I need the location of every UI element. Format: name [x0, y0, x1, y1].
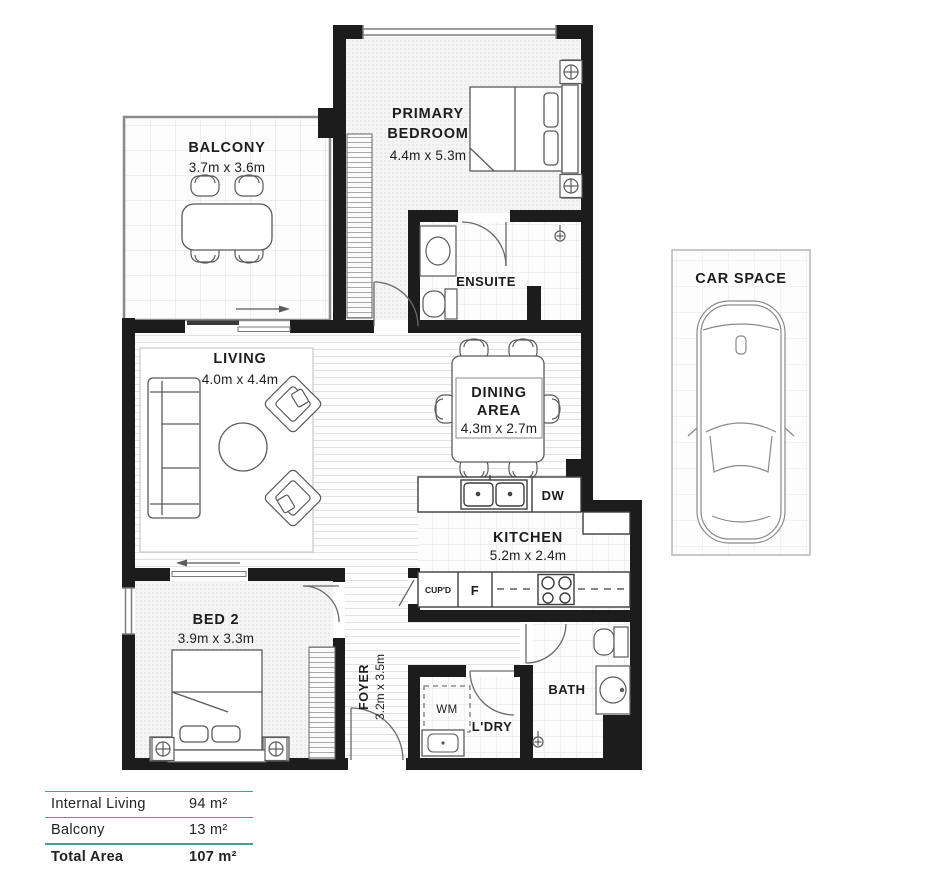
kitchen-label: KITCHEN: [493, 530, 563, 546]
dining-dims: 4.3m x 2.7m: [461, 421, 537, 436]
toilet-tank: [445, 289, 457, 319]
ensuite-fixtures: [420, 226, 457, 319]
primary-bedroom-label-2: BEDROOM: [387, 126, 468, 142]
living-dims: 4.0m x 4.4m: [202, 372, 278, 387]
ensuite-label: ENSUITE: [456, 274, 516, 289]
bath-fixtures: [594, 627, 630, 714]
pillow: [544, 93, 558, 127]
pillow: [544, 131, 558, 165]
balcony-table: [182, 204, 272, 250]
floor-plan-page: BALCONY 3.7m x 3.6m PRIMARY BEDROOM 4.4m…: [0, 0, 928, 882]
foyer-label: FOYER: [357, 664, 371, 710]
primary-bedroom-label-1: PRIMARY: [392, 106, 464, 122]
toilet-bowl: [423, 291, 445, 317]
legend-row-balcony: Balcony 13 m²: [45, 817, 253, 843]
bed2-dims: 3.9m x 3.3m: [178, 631, 254, 646]
kitchen-counter-step: [583, 512, 630, 534]
area-legend: Internal Living 94 m² Balcony 13 m² Tota…: [45, 791, 253, 870]
dishwasher-label: DW: [542, 488, 565, 503]
fridge-label: F: [471, 583, 479, 598]
pillow: [212, 726, 240, 742]
primary-wardrobe: [347, 134, 372, 318]
toilet-tank: [614, 627, 628, 657]
laundry-label: L'DRY: [472, 719, 513, 734]
balcony-chair: [235, 175, 263, 196]
bed2-wardrobe: [309, 647, 335, 759]
cupboard-label: CUP'D: [425, 585, 451, 595]
living-label: LIVING: [213, 351, 266, 367]
car-space-label: CAR SPACE: [695, 271, 787, 287]
bedside-lamp-icon: [265, 738, 287, 761]
bed-headboard: [562, 85, 578, 173]
hallway-floor: [345, 477, 418, 622]
foyer-dims: 3.2m x 3.5m: [373, 654, 387, 720]
washing-machine-label: WM: [436, 704, 457, 716]
car-icon: [688, 301, 794, 543]
bath-label: BATH: [548, 682, 585, 697]
toilet-bowl: [594, 629, 614, 655]
legend-row-total-area: Total Area 107 m²: [45, 843, 253, 870]
legend-label: Total Area: [51, 849, 123, 865]
pillow: [180, 726, 208, 742]
dining-label-box: DINING AREA 4.3m x 2.7m: [456, 378, 542, 438]
foyer-nook-floor: [345, 622, 520, 665]
balcony-dims: 3.7m x 3.6m: [189, 160, 265, 175]
dining-label-2: AREA: [477, 403, 521, 419]
legend-row-internal-living: Internal Living 94 m²: [45, 791, 253, 817]
legend-value: 13 m²: [189, 822, 251, 838]
dining-label-1: DINING: [471, 385, 527, 401]
car-space: [672, 250, 810, 555]
bath-vanity: [596, 666, 630, 714]
bed-headboard: [168, 750, 266, 762]
bedside-lamp-icon: [560, 175, 582, 198]
entry-opening: [348, 756, 406, 772]
legend-label: Balcony: [51, 822, 105, 838]
sofa: [148, 378, 200, 518]
legend-value: 107 m²: [189, 849, 251, 865]
primary-bedroom-dims: 4.4m x 5.3m: [390, 148, 466, 163]
balcony-chair: [191, 175, 219, 196]
floor-plan: BALCONY 3.7m x 3.6m PRIMARY BEDROOM 4.4m…: [0, 0, 928, 882]
bedside-lamp-icon: [560, 61, 582, 84]
kitchen-dims: 5.2m x 2.4m: [490, 548, 566, 563]
legend-value: 94 m²: [189, 796, 251, 812]
coffee-table: [219, 423, 267, 471]
bed2-label: BED 2: [193, 612, 240, 628]
bedside-lamp-icon: [152, 738, 174, 761]
balcony-label: BALCONY: [188, 140, 265, 156]
legend-label: Internal Living: [51, 796, 146, 812]
